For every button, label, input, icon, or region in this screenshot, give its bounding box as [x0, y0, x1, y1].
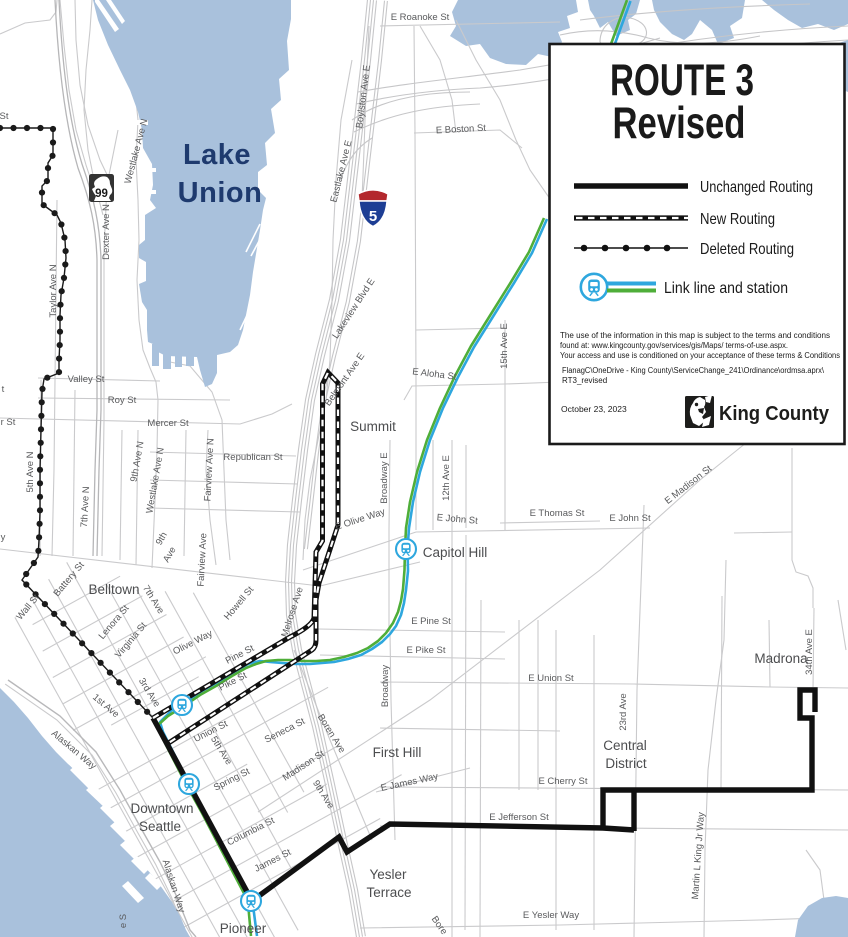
- svg-text:y: y: [1, 532, 6, 543]
- svg-text:Roy St: Roy St: [108, 395, 137, 406]
- svg-text:FlanagC\OneDrive - King County: FlanagC\OneDrive - King County\ServiceCh…: [562, 366, 825, 375]
- svg-text:Valley St: Valley St: [68, 374, 105, 385]
- svg-text:Broadway: Broadway: [380, 665, 391, 707]
- svg-text:E Pike St: E Pike St: [406, 645, 445, 656]
- svg-text:Republican St: Republican St: [223, 452, 283, 463]
- svg-text:Pioneer: Pioneer: [220, 921, 267, 936]
- svg-text:E Thomas St: E Thomas St: [530, 508, 585, 519]
- svg-text:Capitol Hill: Capitol Hill: [423, 545, 488, 560]
- svg-text:E Jefferson St: E Jefferson St: [489, 812, 549, 823]
- svg-text:E John St: E John St: [609, 513, 651, 524]
- svg-text:RT3_revised: RT3_revised: [562, 376, 607, 385]
- svg-text:Union: Union: [178, 177, 263, 209]
- svg-text:E Pine St: E Pine St: [411, 616, 451, 627]
- svg-text:t: t: [2, 384, 5, 395]
- svg-text:5: 5: [369, 208, 377, 225]
- svg-text:99: 99: [95, 188, 108, 200]
- svg-text:Deleted Routing: Deleted Routing: [700, 241, 794, 258]
- svg-text:r St: r St: [1, 417, 16, 428]
- svg-text:Madrona: Madrona: [754, 651, 808, 666]
- svg-text:Lake: Lake: [183, 139, 251, 171]
- svg-text:15th Ave E: 15th Ave E: [499, 323, 510, 369]
- svg-text:District: District: [605, 756, 646, 771]
- svg-text:Yesler: Yesler: [369, 867, 407, 882]
- svg-text:Link line and station: Link line and station: [664, 280, 788, 297]
- svg-text:The use of the information in: The use of the information in this map i…: [560, 331, 830, 340]
- svg-text:12th Ave E: 12th Ave E: [441, 455, 452, 501]
- svg-text:Belltown: Belltown: [88, 582, 139, 597]
- svg-text:Downtown: Downtown: [130, 801, 193, 816]
- svg-text:7th Ave N: 7th Ave N: [79, 486, 92, 528]
- svg-text:Your access and use is conditi: Your access and use is conditioned on yo…: [560, 351, 840, 360]
- svg-text:St: St: [0, 111, 9, 122]
- svg-text:Summit: Summit: [350, 419, 396, 434]
- svg-text:5th Ave N: 5th Ave N: [25, 451, 36, 492]
- svg-text:Terrace: Terrace: [366, 885, 411, 900]
- svg-text:First Hill: First Hill: [373, 745, 422, 760]
- svg-text:Taylor Ave N: Taylor Ave N: [48, 264, 59, 317]
- svg-text:E Union St: E Union St: [528, 673, 574, 684]
- svg-text:23rd Ave: 23rd Ave: [618, 693, 629, 730]
- svg-text:Central: Central: [603, 738, 647, 753]
- svg-text:ROUTE 3: ROUTE 3: [610, 56, 754, 105]
- svg-text:Revised: Revised: [613, 99, 746, 148]
- svg-text:Unchanged Routing: Unchanged Routing: [700, 179, 813, 196]
- svg-text:E Cherry St: E Cherry St: [538, 776, 587, 787]
- svg-text:Dexter Ave N: Dexter Ave N: [101, 204, 112, 260]
- svg-text:e S: e S: [118, 914, 129, 928]
- svg-text:Broadway E: Broadway E: [379, 452, 390, 503]
- svg-text:E Yesler Way: E Yesler Way: [523, 910, 579, 921]
- svg-text:King County: King County: [719, 403, 830, 425]
- svg-text:October 23, 2023: October 23, 2023: [561, 404, 627, 414]
- svg-text:E Roanoke St: E Roanoke St: [391, 12, 450, 23]
- svg-text:New Routing: New Routing: [700, 211, 775, 228]
- svg-text:found at: www.kingcounty.gov/s: found at: www.kingcounty.gov/services/gi…: [560, 341, 788, 350]
- svg-text:Seattle: Seattle: [139, 819, 181, 834]
- svg-text:Mercer St: Mercer St: [147, 418, 189, 429]
